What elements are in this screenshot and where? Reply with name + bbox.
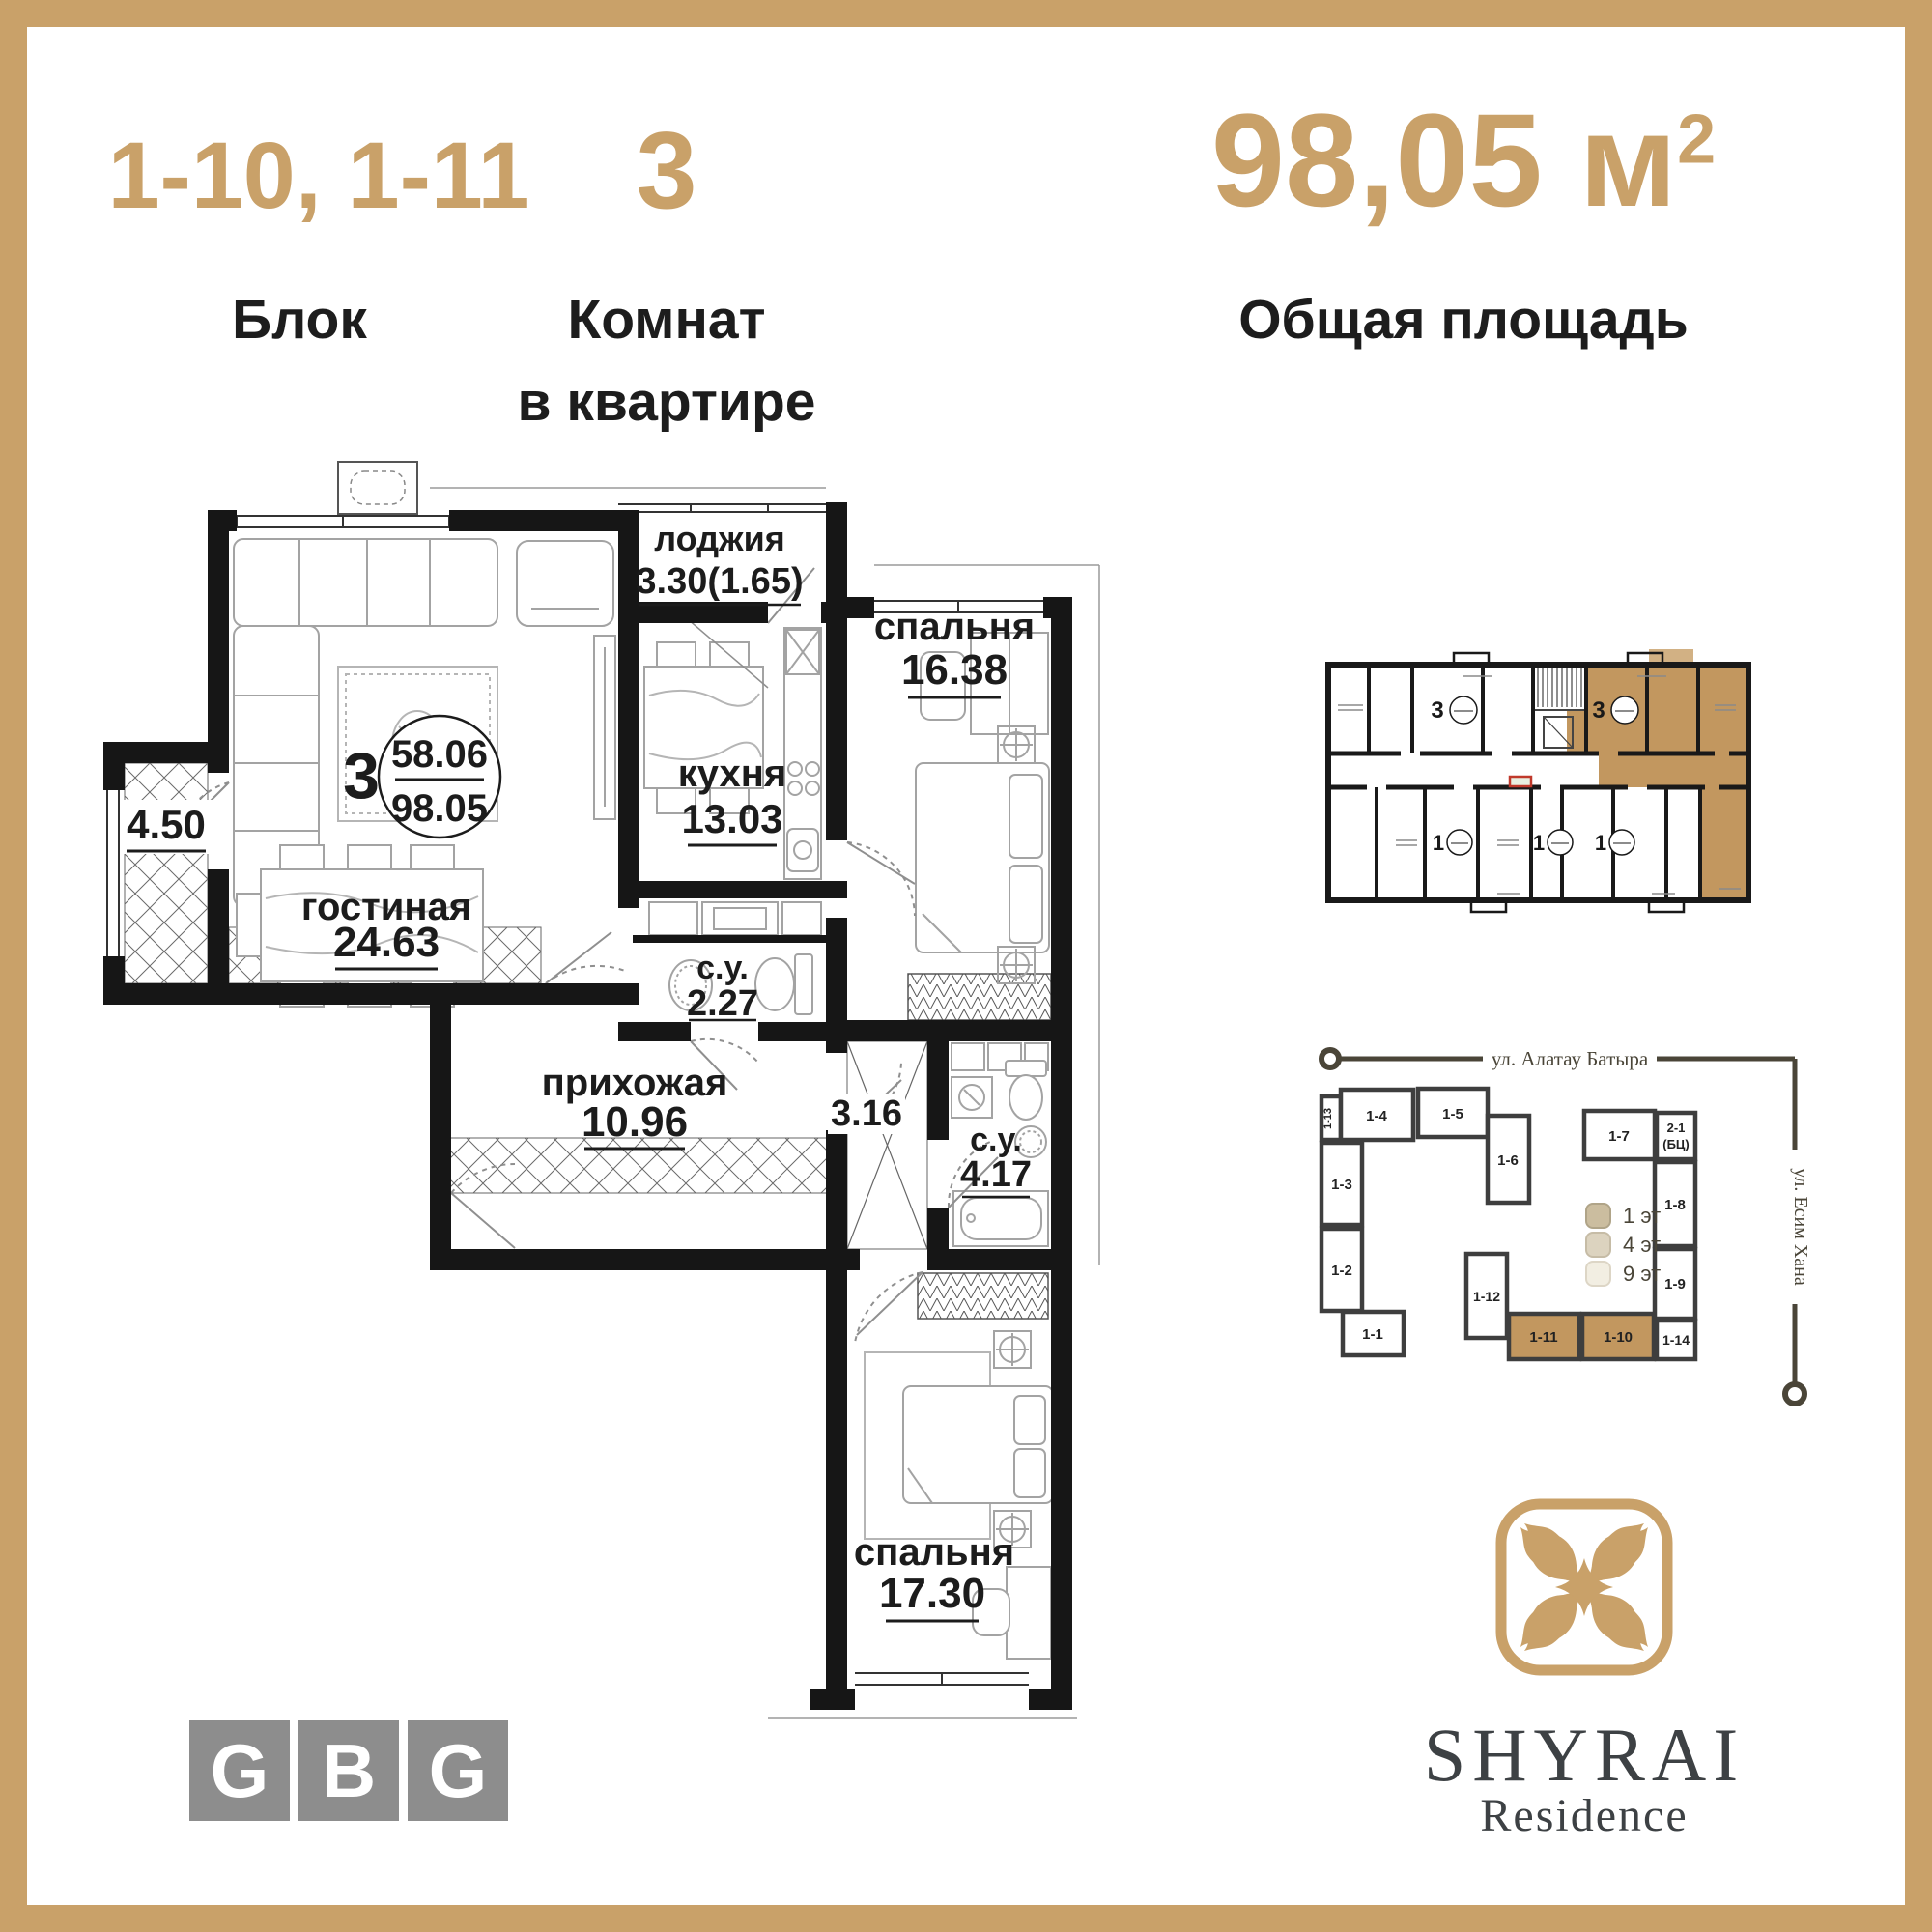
- kitchen-area: 13.03: [681, 796, 782, 841]
- bldg-1-6: 1-6: [1497, 1152, 1519, 1169]
- total-area-label: Общая площадь: [1048, 293, 1879, 348]
- loggia-area: 3.30(1.65): [636, 561, 803, 602]
- rooms-label-line2: в квартире: [512, 375, 821, 430]
- bath2-area: 4.17: [960, 1154, 1032, 1195]
- bldg-1-13: 1-13: [1322, 1108, 1334, 1129]
- apartment-floorplan: 3 58.06 98.05 лоджия 3.30(1.65) спальня …: [92, 444, 1116, 1758]
- bedroom1-label: спальня: [874, 606, 1035, 648]
- site-plan: ул. Алатау Батыра ул. Есим Хана 1-13 1-4…: [1294, 1024, 1835, 1449]
- brand-subtitle: Residence: [1391, 1789, 1777, 1842]
- unit1-a-digit: 1: [1433, 831, 1444, 855]
- unit-summary: 3 58.06 98.05: [343, 716, 500, 838]
- brand-ornament-icon: [1495, 1495, 1673, 1679]
- bldg-1-4: 1-4: [1366, 1108, 1387, 1124]
- legend-4fl: 4 эт: [1623, 1233, 1661, 1257]
- brand-name: SHYRAI: [1391, 1712, 1777, 1799]
- bldg-1-11: 1-11: [1529, 1329, 1557, 1346]
- gbg-letter-2: B: [298, 1720, 399, 1821]
- tv-stand-icon: [594, 636, 615, 819]
- legend-1fl: 1 эт: [1623, 1204, 1661, 1228]
- bedroom2-area: 17.30: [879, 1570, 985, 1617]
- unit1-b-digit: 1: [1533, 831, 1545, 855]
- flyer-poster: 1-10, 1-11 Блок 3 Комнат в квартире 98,0…: [0, 0, 1932, 1932]
- bathtub-icon: [953, 1191, 1048, 1246]
- bldg-2-1-sub: (БЦ): [1662, 1137, 1690, 1151]
- floor-key-plan: 3 3 1 1 1: [1309, 618, 1768, 918]
- unit-rooms-count: 3: [343, 739, 380, 812]
- street-end-circle-bottom: [1785, 1384, 1804, 1404]
- unit3-left-digit: 3: [1431, 697, 1443, 724]
- legend-9fl: 9 эт: [1623, 1262, 1661, 1286]
- gbg-logo: G B G: [189, 1720, 508, 1821]
- street-top-label: ул. Алатау Батыра: [1492, 1047, 1649, 1070]
- block-label: Блок: [87, 293, 512, 348]
- bldg-1-9: 1-9: [1664, 1276, 1686, 1293]
- bedroom1-area: 16.38: [901, 646, 1008, 694]
- loggia-label: лоджия: [654, 519, 784, 558]
- rooms-label-line1: Комнат: [512, 293, 821, 348]
- bed-icon-bedroom2: [903, 1386, 1053, 1503]
- block-number: 1-10, 1-11: [87, 128, 551, 222]
- kitchen-label: кухня: [678, 753, 787, 795]
- ac-unit-icon: [338, 462, 417, 514]
- street-right-label: ул. Есим Хана: [1790, 1168, 1811, 1286]
- bldg-1-2: 1-2: [1331, 1263, 1352, 1279]
- street-end-circle-left: [1321, 1050, 1339, 1067]
- closet-left-area: 4.50: [127, 802, 206, 847]
- unit3-right-digit: 3: [1592, 697, 1605, 724]
- bldg-1-12: 1-12: [1473, 1289, 1500, 1304]
- unit-living-area: 58.06: [391, 733, 488, 776]
- closet2-area: 3.16: [831, 1094, 902, 1134]
- keyplan-entrance-marker: [1510, 777, 1531, 786]
- unit1-c-digit: 1: [1595, 831, 1606, 855]
- bath1-area: 2.27: [687, 983, 758, 1024]
- bldg-1-5: 1-5: [1442, 1106, 1463, 1122]
- washer-icon: [952, 1077, 992, 1118]
- toilet-icon-bath2: [1006, 1061, 1046, 1120]
- bldg-1-8: 1-8: [1664, 1197, 1686, 1213]
- hall-area: 10.96: [582, 1098, 688, 1146]
- bath2-label: с.у.: [970, 1122, 1022, 1158]
- bath1-label: с.у.: [696, 950, 749, 986]
- bldg-1-14: 1-14: [1662, 1332, 1690, 1348]
- bedroom2-label: спальня: [854, 1531, 1014, 1574]
- rooms-count: 3: [536, 116, 797, 225]
- bldg-2-1: 2-1: [1667, 1121, 1686, 1135]
- kitchen-counter-icon: [784, 628, 821, 879]
- keyplan-highlight: [1567, 649, 1750, 898]
- total-area-number: 98,05 м: [1211, 87, 1677, 235]
- toilet-icon-bath1: [755, 954, 812, 1014]
- gbg-letter-3: G: [408, 1720, 508, 1821]
- bldg-1-1: 1-1: [1362, 1326, 1383, 1343]
- armchair-icon: [517, 541, 613, 626]
- area-superscript: 2: [1677, 100, 1716, 178]
- bldg-1-7: 1-7: [1608, 1128, 1630, 1145]
- bldg-1-10: 1-10: [1604, 1329, 1633, 1346]
- gbg-letter-1: G: [189, 1720, 290, 1821]
- bldg-1-3: 1-3: [1331, 1177, 1352, 1193]
- total-area-value: 98,05 м2: [1048, 95, 1879, 227]
- site-legend: 1 эт 4 эт 9 эт: [1586, 1204, 1661, 1286]
- living-area-label: 24.63: [333, 919, 440, 966]
- unit-total-area: 98.05: [391, 787, 488, 830]
